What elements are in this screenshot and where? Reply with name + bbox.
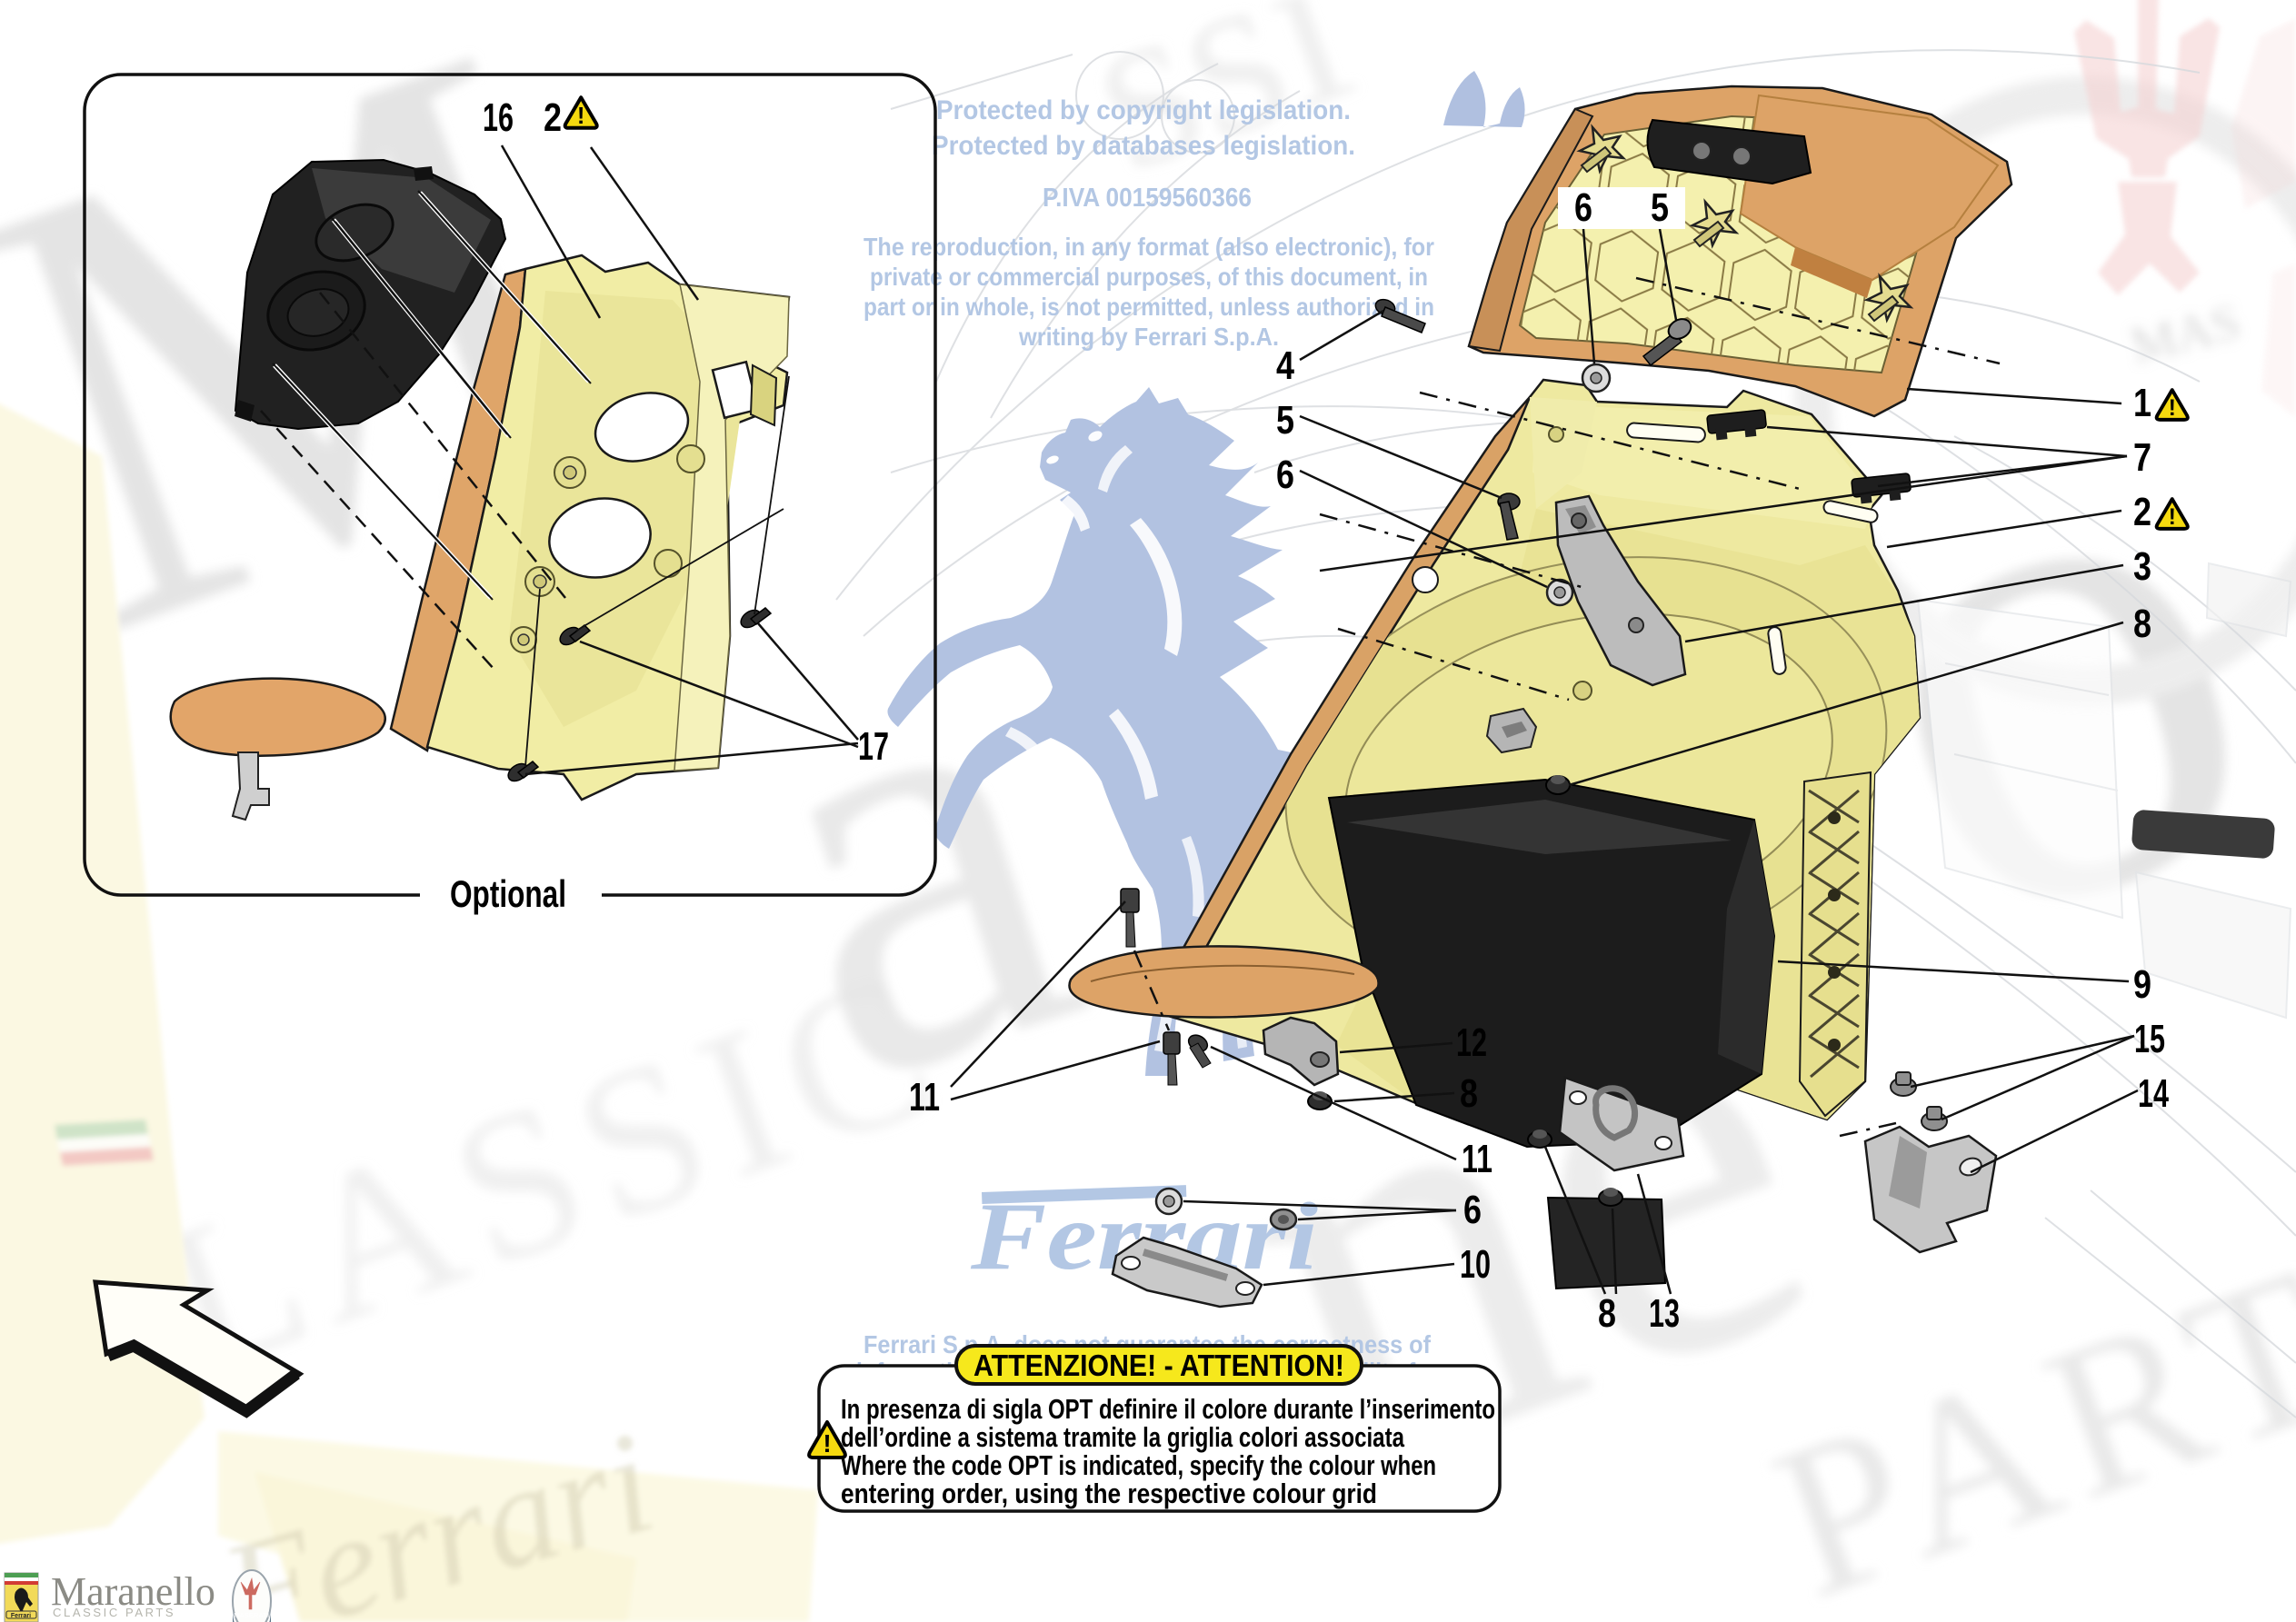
svg-text:In presenza di sigla OPT defin: In presenza di sigla OPT definire il col… [841, 1393, 1495, 1425]
svg-text:8: 8 [1598, 1291, 1616, 1336]
svg-text:10: 10 [1460, 1242, 1491, 1287]
svg-text:6: 6 [1574, 185, 1592, 230]
svg-text:P.IVA 00159560366: P.IVA 00159560366 [1043, 184, 1252, 213]
svg-text:17: 17 [858, 724, 889, 769]
svg-text:Protected by copyright legisla: Protected by copyright legislation. [936, 95, 1351, 125]
svg-text:writing by Ferrari S.p.A.: writing by Ferrari S.p.A. [1018, 323, 1279, 351]
svg-text:11: 11 [909, 1075, 940, 1119]
svg-text:6: 6 [1276, 453, 1294, 497]
svg-text:14: 14 [2138, 1071, 2169, 1116]
svg-text:5: 5 [1651, 185, 1669, 230]
svg-text:CLASSIC PARTS: CLASSIC PARTS [53, 1606, 175, 1619]
svg-text:The reproduction, in any forma: The reproduction, in any format (also el… [863, 233, 1434, 261]
svg-text:!: ! [2169, 504, 2176, 530]
svg-text:Optional: Optional [450, 872, 566, 915]
svg-text:13: 13 [1649, 1291, 1680, 1336]
svg-text:entering order, using the resp: entering order, using the respective col… [841, 1478, 1377, 1509]
svg-text:dell’ordine a sistema tramite: dell’ordine a sistema tramite la griglia… [841, 1421, 1405, 1453]
svg-text:Where the code OPT is indicate: Where the code OPT is indicated, specify… [841, 1449, 1436, 1481]
svg-text:15: 15 [2134, 1017, 2165, 1061]
svg-text:8: 8 [2133, 602, 2151, 646]
svg-text:!: ! [823, 1429, 831, 1458]
svg-text:2: 2 [544, 95, 562, 140]
svg-text:9: 9 [2133, 962, 2151, 1007]
svg-text:MASERATI: MASERATI [234, 1613, 269, 1619]
svg-text:!: ! [577, 104, 585, 129]
svg-text:16: 16 [483, 95, 514, 140]
svg-text:8: 8 [1460, 1071, 1478, 1116]
svg-text:4: 4 [1276, 343, 1294, 388]
svg-text:MAS: MAS [2125, 294, 2246, 375]
svg-text:2: 2 [2133, 490, 2151, 534]
svg-text:12: 12 [1456, 1020, 1487, 1065]
svg-text:7: 7 [2133, 435, 2151, 480]
svg-text:3: 3 [2133, 544, 2151, 589]
svg-text:Protected by databases legisla: Protected by databases legislation. [932, 131, 1355, 161]
svg-text:Ferrari: Ferrari [11, 1613, 31, 1619]
svg-text:1: 1 [2133, 381, 2151, 425]
svg-text:part or in whole, is not permi: part or in whole, is not permitted, unle… [863, 293, 1434, 321]
svg-text:ATTENZIONE! - ATTENTION!: ATTENZIONE! - ATTENTION! [973, 1348, 1344, 1382]
svg-text:private or commercial purposes: private or commercial purposes, of this … [870, 263, 1428, 291]
svg-text:!: ! [2169, 395, 2176, 421]
svg-text:6: 6 [1463, 1188, 1482, 1232]
svg-text:5: 5 [1276, 398, 1294, 443]
svg-text:11: 11 [1462, 1137, 1492, 1181]
